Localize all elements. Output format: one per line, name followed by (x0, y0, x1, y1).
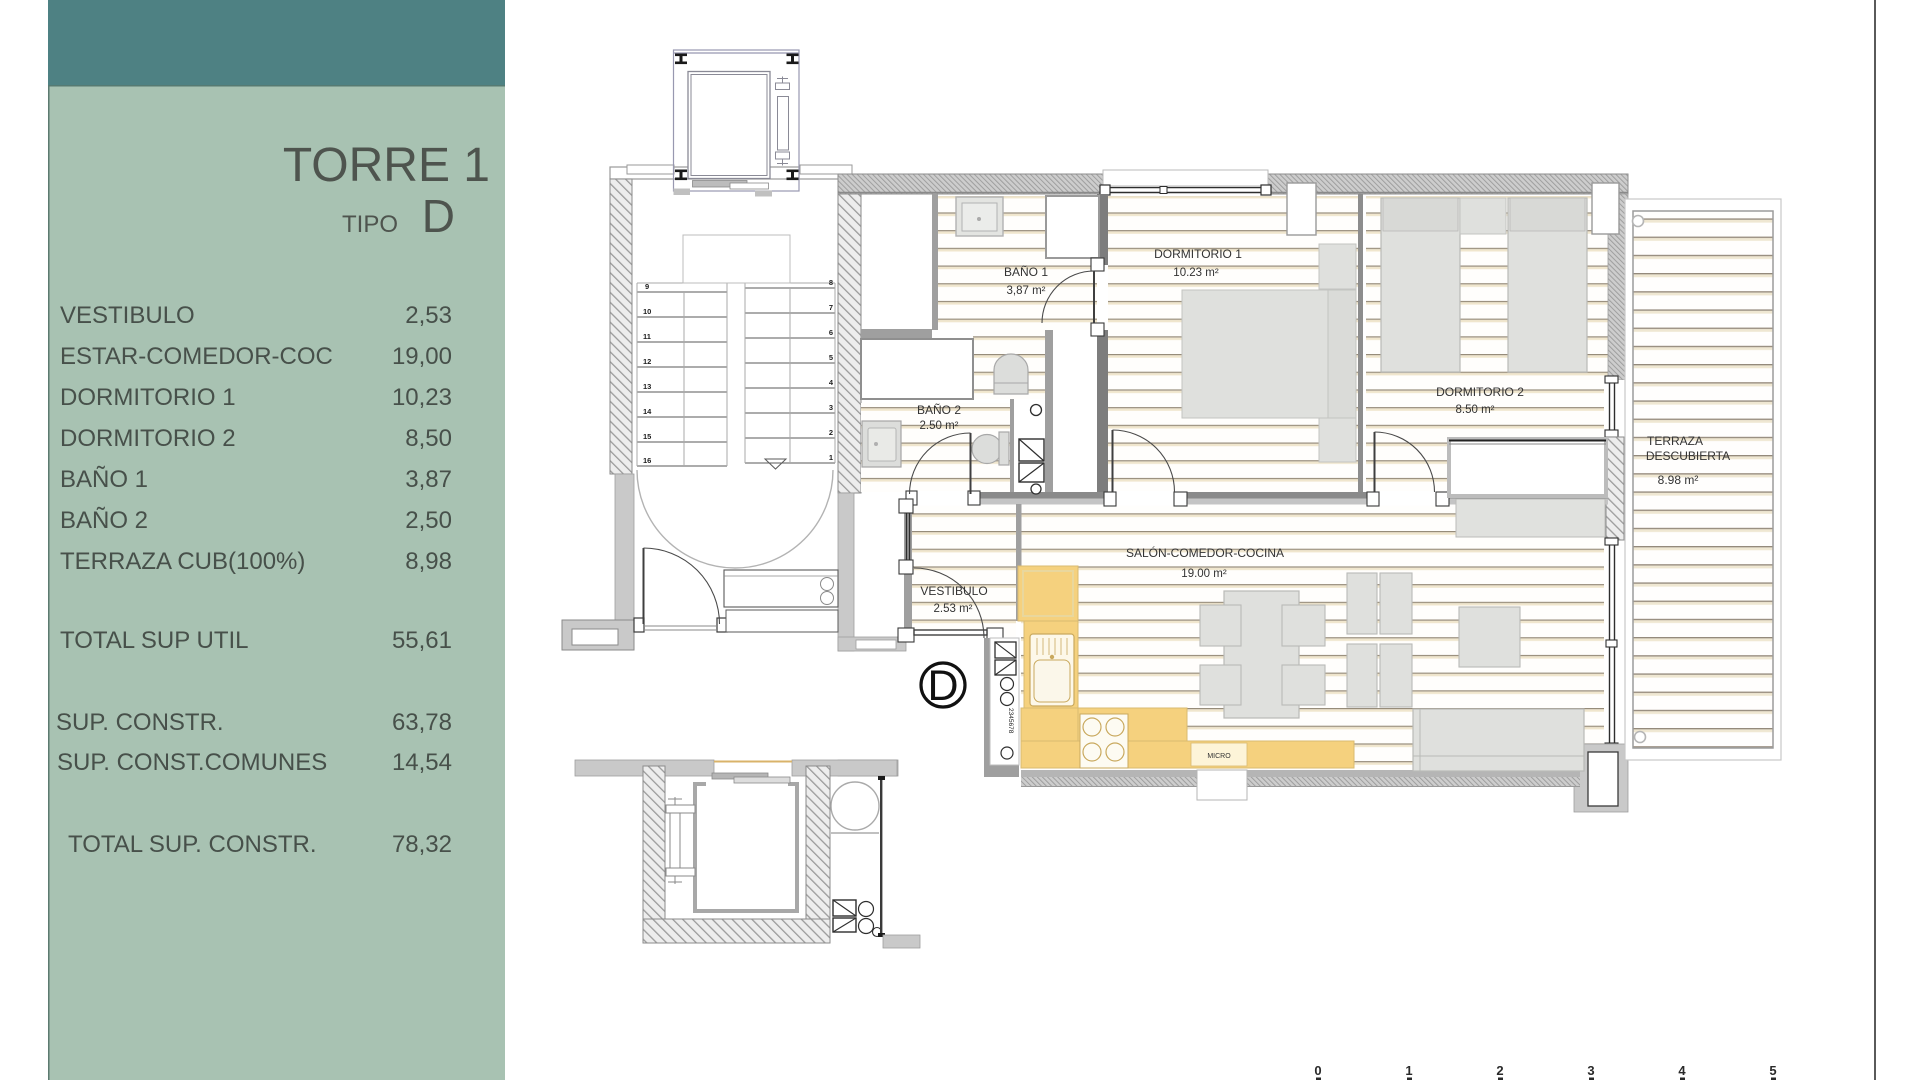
svg-text:10,23: 10,23 (392, 384, 452, 411)
svg-text:14: 14 (643, 407, 652, 416)
svg-text:TOTAL SUP. CONSTR.: TOTAL SUP. CONSTR. (68, 831, 317, 858)
svg-text:1: 1 (829, 453, 833, 462)
svg-text:19,00: 19,00 (392, 343, 452, 370)
svg-text:DESCUBIERTA: DESCUBIERTA (1646, 449, 1730, 463)
svg-text:8: 8 (829, 278, 833, 287)
svg-text:3,87: 3,87 (405, 466, 452, 493)
svg-text:2.50 m²: 2.50 m² (920, 420, 959, 432)
svg-text:2: 2 (829, 428, 833, 437)
svg-text:BAÑO 2: BAÑO 2 (917, 403, 961, 417)
svg-text:10: 10 (643, 307, 651, 316)
svg-text:3,87 m²: 3,87 m² (1007, 285, 1046, 297)
svg-text:55,61: 55,61 (392, 627, 452, 654)
svg-text:13: 13 (643, 382, 651, 391)
svg-text:D: D (927, 662, 958, 710)
svg-text:15: 15 (643, 432, 651, 441)
svg-text:0: 0 (1314, 1063, 1321, 1078)
svg-text:MICRO: MICRO (1207, 753, 1231, 760)
svg-text:SUP. CONSTR.: SUP. CONSTR. (56, 709, 224, 736)
svg-text:BAÑO 1: BAÑO 1 (1004, 265, 1048, 279)
svg-text:ESTAR-COMEDOR-COC: ESTAR-COMEDOR-COC (60, 343, 333, 370)
svg-text:TERRAZA CUB(100%): TERRAZA CUB(100%) (60, 548, 305, 575)
svg-text:8.98 m²: 8.98 m² (1658, 473, 1699, 487)
svg-text:VESTIBULO: VESTIBULO (920, 584, 987, 598)
svg-text:78,32: 78,32 (392, 831, 452, 858)
svg-text:DORMITORIO 2: DORMITORIO 2 (60, 425, 236, 452)
svg-text:16: 16 (643, 456, 651, 465)
svg-text:VESTIBULO: VESTIBULO (60, 302, 195, 329)
svg-text:1: 1 (1405, 1063, 1412, 1078)
svg-text:SUP. CONST.COMUNES: SUP. CONST.COMUNES (57, 749, 327, 776)
svg-text:2.53 m²: 2.53 m² (934, 603, 973, 615)
svg-text:10.23 m²: 10.23 m² (1173, 267, 1219, 279)
svg-text:TORRE 1: TORRE 1 (283, 139, 490, 192)
svg-text:3: 3 (1587, 1063, 1594, 1078)
svg-text:5: 5 (1769, 1063, 1776, 1078)
svg-text:D: D (422, 190, 455, 242)
svg-text:2345678: 2345678 (1007, 708, 1014, 734)
svg-text:TIPO: TIPO (342, 211, 398, 238)
svg-text:DORMITORIO 2: DORMITORIO 2 (1436, 385, 1524, 399)
svg-text:DORMITORIO 1: DORMITORIO 1 (60, 384, 236, 411)
svg-text:14,54: 14,54 (392, 749, 452, 776)
svg-text:63,78: 63,78 (392, 709, 452, 736)
svg-text:TOTAL SUP UTIL: TOTAL SUP UTIL (60, 627, 249, 654)
svg-text:12: 12 (643, 357, 651, 366)
svg-text:2,50: 2,50 (405, 507, 452, 534)
svg-text:SALÓN-COMEDOR-COCINA: SALÓN-COMEDOR-COCINA (1126, 545, 1284, 560)
svg-text:8,98: 8,98 (405, 548, 452, 575)
svg-text:2: 2 (1496, 1063, 1503, 1078)
svg-text:11: 11 (643, 332, 651, 341)
svg-text:9: 9 (645, 282, 649, 291)
svg-text:8,50: 8,50 (405, 425, 452, 452)
svg-text:BAÑO 2: BAÑO 2 (60, 507, 148, 534)
svg-text:6: 6 (829, 328, 833, 337)
svg-text:TERRAZA: TERRAZA (1647, 434, 1703, 448)
svg-text:DORMITORIO 1: DORMITORIO 1 (1154, 247, 1242, 261)
svg-text:4: 4 (1678, 1063, 1686, 1078)
svg-text:8.50 m²: 8.50 m² (1456, 404, 1495, 416)
svg-text:7: 7 (829, 303, 833, 312)
svg-text:3: 3 (829, 403, 833, 412)
svg-text:19.00 m²: 19.00 m² (1181, 568, 1227, 580)
svg-text:BAÑO 1: BAÑO 1 (60, 466, 148, 493)
svg-text:5: 5 (829, 353, 833, 362)
svg-text:2,53: 2,53 (405, 302, 452, 329)
